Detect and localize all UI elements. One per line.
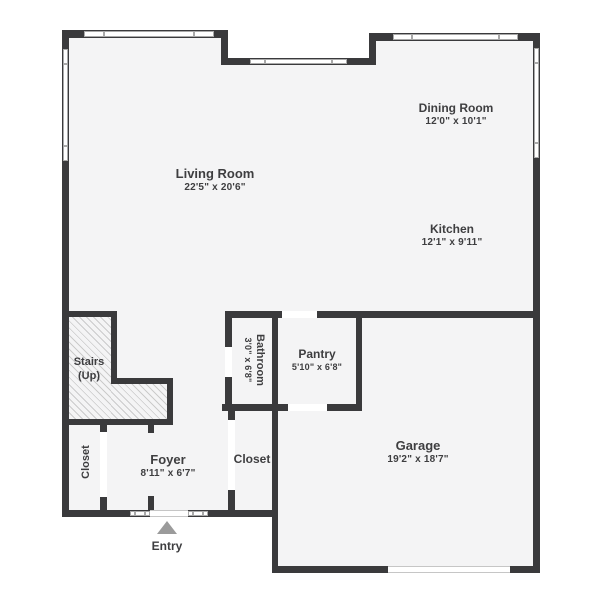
kitchen-name: Kitchen [422,222,483,237]
stairs-border-top [62,311,117,317]
bathroom-name: Bathroom [253,334,267,386]
hall-closet-label: Closet [234,452,271,467]
garage-dims: 19'2" x 18'7" [387,454,448,467]
stairs-border-bottom [62,419,173,425]
entry-arrow-icon [157,521,177,534]
entry-label: Entry [152,539,183,553]
stairs-label: Stairs (Up) [74,356,105,384]
bathroom-label: Bathroom 3'0" x 6'8" [241,334,267,386]
living-room-label: Living Room 22'5" x 20'6" [176,166,255,195]
stairs-border-right-upper [111,311,117,384]
garage-door-opening [388,566,510,573]
pantry-name: Pantry [292,347,342,362]
entry-sidelight-left [130,511,150,516]
pantry-top-opening [282,311,317,318]
pantry-bottom-opening [288,404,327,411]
dining-room-dims: 12'0" x 10'1" [419,116,494,129]
pantry-label: Pantry 5'10" x 6'8" [292,347,342,373]
pantry-dims: 5'10" x 6'8" [292,362,342,373]
window-recess [250,59,347,64]
bathroom-door-opening [225,347,232,377]
wall-jamb-stub-bottom [148,496,154,510]
stairs-hatch-lower [111,384,167,419]
window-top-right [393,34,518,40]
garage-label: Garage 19'2" x 18'7" [387,438,448,467]
foyer-name: Foyer [140,452,195,468]
foyer-label: Foyer 8'11" x 6'7" [140,452,195,481]
entry-sidelight-right [188,511,208,516]
stairs-name: Stairs [74,356,105,370]
dining-room-label: Dining Room 12'0" x 10'1" [419,101,494,129]
wall-jamb-stub-top [148,424,154,433]
stairs-sub: (Up) [74,370,105,384]
kitchen-dims: 12'1" x 9'11" [422,237,483,250]
window-right-wall [534,48,539,158]
top-recess-exterior [221,30,376,59]
hall-closet-name: Closet [234,452,271,467]
entry-door-opening [150,510,188,517]
left-closet-label: Closet [79,445,93,479]
wall-bathroom-right-garage-left [272,311,278,573]
left-closet-door-opening [100,432,107,497]
living-room-name: Living Room [176,166,255,182]
living-room-dims: 22'5" x 20'6" [176,182,255,195]
dining-room-name: Dining Room [419,101,494,116]
wall-pantry-right [356,311,362,411]
bathroom-dims: 3'0" x 6'8" [241,334,253,386]
left-closet-name: Closet [79,445,93,479]
foyer-dims: 8'11" x 6'7" [140,468,195,481]
garage-name: Garage [387,438,448,454]
stairs-border-right-lower [167,378,173,425]
window-left-wall [63,49,68,161]
window-top-left [84,31,214,37]
floor-plan: Living Room 22'5" x 20'6" Dining Room 12… [0,0,604,604]
stairs-border-step [111,378,173,384]
kitchen-label: Kitchen 12'1" x 9'11" [422,222,483,250]
